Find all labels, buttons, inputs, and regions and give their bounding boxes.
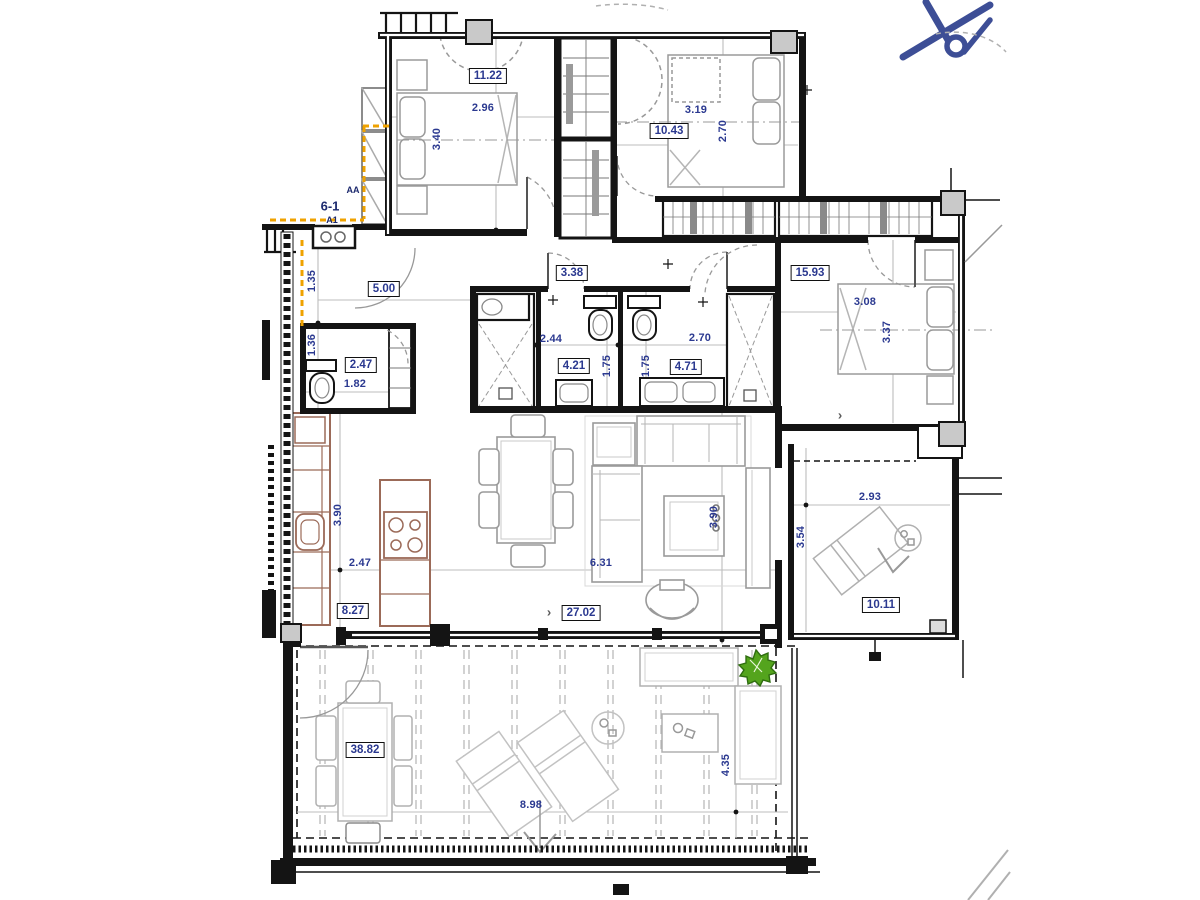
area-label-bedroom-2: 10.43 [650, 123, 689, 139]
living-direction-arrow: › [547, 605, 551, 620]
dim-bath-2-depth: 1.75 [640, 355, 652, 377]
dim-entry-width: 1.35 [306, 270, 318, 292]
dim-bath-1-depth: 1.75 [601, 355, 613, 377]
area-label-master-bedroom: 15.93 [791, 265, 830, 281]
floor-plan-canvas: 11.22 10.43 15.93 5.00 3.38 2.47 4.21 4.… [0, 0, 1200, 900]
dim-side-terrace-width: 2.93 [859, 491, 881, 503]
dim-side-terrace-depth: 3.54 [795, 526, 807, 548]
dim-bath-2-width: 2.70 [689, 332, 711, 344]
north-arrow-icon [903, 2, 990, 57]
plant-icon [739, 650, 776, 686]
dim-kitchen-depth: 3.90 [332, 504, 344, 526]
dining-set [479, 415, 573, 567]
dim-bath-1-width: 2.44 [540, 333, 562, 345]
master-direction-arrow: › [838, 408, 842, 423]
unit-mark: 6-1 [321, 199, 340, 214]
area-label-bathroom-1: 4.21 [558, 358, 590, 374]
master-bedroom-furniture [820, 250, 995, 404]
dim-bedroom-2-width: 3.19 [685, 104, 707, 116]
dim-wc-width: 1.36 [306, 334, 318, 356]
area-label-main-terrace: 38.82 [346, 742, 385, 758]
area-label-bedroom-1: 11.22 [469, 68, 507, 84]
area-label-corridor: 3.38 [556, 265, 588, 281]
area-label-side-terrace: 10.11 [862, 597, 900, 613]
area-label-bathroom-2: 4.71 [670, 359, 702, 375]
area-label-living-room: 27.02 [562, 605, 601, 621]
dim-bedroom-1-width: 2.96 [472, 102, 494, 114]
floor-plan-drawing [0, 0, 1200, 900]
bedroom-2-furniture [615, 36, 800, 187]
dim-master-width: 3.08 [854, 296, 876, 308]
dim-living-width: 6.31 [590, 557, 612, 569]
section-mark: AA [347, 185, 360, 195]
kitchen-cabinets [291, 413, 430, 626]
area-label-kitchen: 8.27 [337, 603, 369, 619]
area-label-guest-wc: 2.47 [345, 357, 377, 373]
dim-kitchen-width: 2.47 [349, 557, 371, 569]
area-label-hall: 5.00 [368, 281, 400, 297]
entry-door [313, 226, 355, 248]
terrace-furniture [316, 648, 781, 852]
dim-wc-depth: 1.82 [344, 378, 366, 390]
dim-terrace-depth: 4.35 [720, 754, 732, 776]
side-terrace-furniture [813, 507, 921, 595]
living-room-furniture [585, 416, 770, 619]
dim-living-depth: 3.90 [708, 506, 720, 528]
dim-master-depth: 3.37 [881, 321, 893, 343]
dim-bedroom-2-depth: 2.70 [717, 120, 729, 142]
dim-bedroom-1-depth: 3.40 [431, 128, 443, 150]
unit-submark: A1 [326, 215, 338, 225]
dim-terrace-width: 8.98 [520, 799, 542, 811]
